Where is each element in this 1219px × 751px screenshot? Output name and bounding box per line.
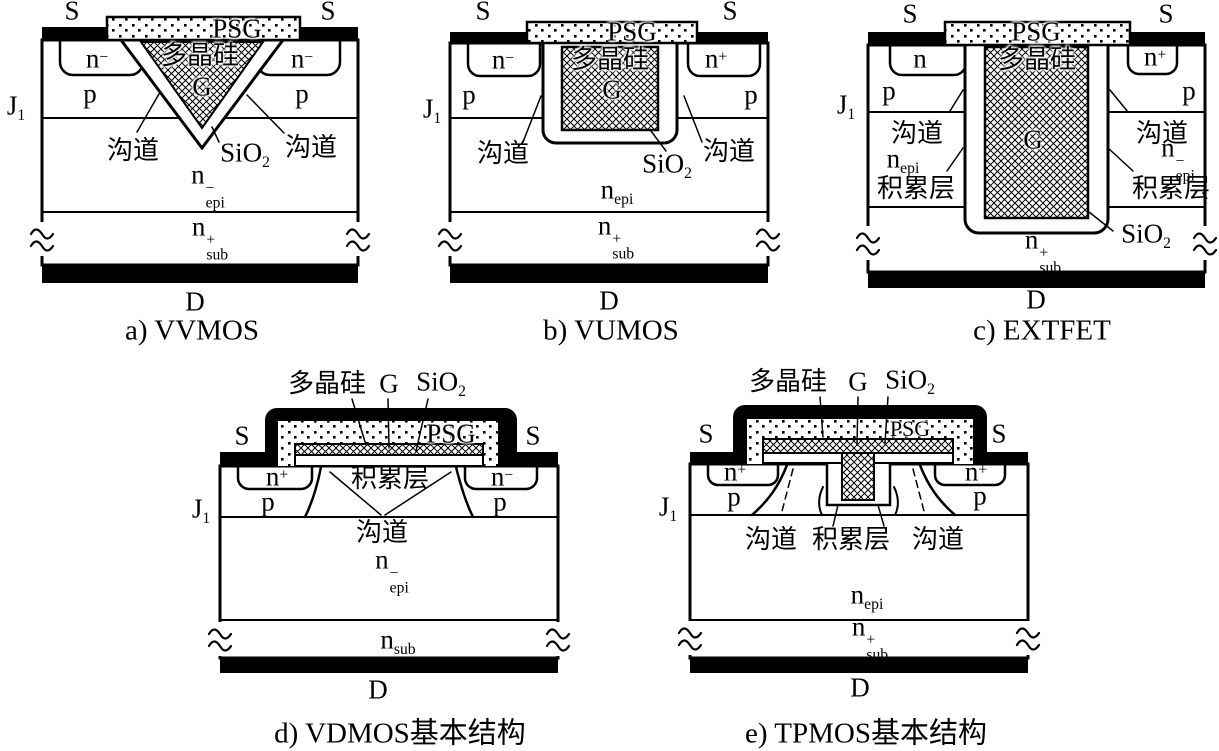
d-leader-gate <box>388 399 389 448</box>
d-p-right-label: p <box>493 489 507 516</box>
e-substrate-label: n+sub <box>852 614 888 665</box>
a-source-left-label: S <box>64 0 79 25</box>
a-drain-label: D <box>185 289 205 316</box>
b-poly-label: 多晶硅 <box>571 47 649 73</box>
c-accum-left-label: 积累层 <box>877 176 955 202</box>
a-n-left-label: n− <box>86 46 108 73</box>
a-n-right-label: n− <box>291 46 313 73</box>
c-gate-label: G <box>1023 127 1043 154</box>
b-junction-label: J1 <box>423 95 441 126</box>
a-caption: a) VVMOS <box>125 317 259 346</box>
b-drain-metal <box>450 265 768 283</box>
a-source-right-label: S <box>320 0 335 25</box>
diagram-canvas <box>0 0 1219 751</box>
e-epi-label: nepi <box>851 581 884 612</box>
e-junction-label: J1 <box>659 493 677 524</box>
d-junction-label: J1 <box>192 495 210 526</box>
b-channel-left-label: 沟道 <box>477 141 529 167</box>
b-psg-label: PSG <box>607 19 657 46</box>
b-p-left-label: p <box>462 82 476 109</box>
d-epi-label: n−epi <box>375 547 409 598</box>
b-n-right-label: n+ <box>705 46 727 73</box>
d-sio2-label: SiO2 <box>416 368 466 399</box>
e-gate-label: G <box>848 369 868 396</box>
c-drain-label: D <box>1026 287 1046 314</box>
c-poly-label: 多晶硅 <box>998 47 1076 73</box>
a-psg-region <box>107 17 300 40</box>
b-p-right-label: p <box>744 82 758 109</box>
a-epi-label: n−epi <box>191 162 225 213</box>
b-n-left-label: n− <box>492 47 514 74</box>
a-sio2-label: SiO2 <box>220 139 270 170</box>
d-caption: d) VDMOS基本结构 <box>274 720 526 749</box>
a-substrate-label: n+sub <box>192 214 228 265</box>
e-sio2-label: SiO2 <box>885 366 935 397</box>
e-accum-label: 积累层 <box>812 527 890 553</box>
e-leader-gate <box>857 397 858 445</box>
a-drain-metal <box>42 265 358 283</box>
e-source-right-label: S <box>991 421 1006 448</box>
d-poly-label: 多晶硅 <box>288 371 366 397</box>
e-caption: e) TPMOS基本结构 <box>745 720 987 749</box>
c-substrate-label: n+sub <box>1025 227 1061 278</box>
d-source-right-label: S <box>525 423 540 450</box>
c-psg-label: PSG <box>1011 19 1061 46</box>
b-channel-right-label: 沟道 <box>703 139 755 165</box>
e-poly-label: 多晶硅 <box>749 369 827 395</box>
d-drain-label: D <box>368 677 388 704</box>
c-caption: c) EXTFET <box>973 317 1111 346</box>
a-p-left-label: p <box>83 81 97 108</box>
d-substrate-label: nsub <box>380 626 415 657</box>
c-epi-left-label: nepi <box>887 145 920 176</box>
b-caption: b) VUMOS <box>543 317 679 346</box>
b-sio2-label: SiO2 <box>642 150 692 181</box>
c-accum-right-label: 积累层 <box>1132 176 1210 202</box>
c-sio2-label: SiO2 <box>1121 220 1171 251</box>
c-p-left-label: p <box>882 78 896 105</box>
e-gate-poly-bar <box>763 439 953 453</box>
c-junction-label: J1 <box>837 91 855 122</box>
c-n-right-label: n+ <box>1144 44 1166 71</box>
b-epi-label: nepi <box>601 176 634 207</box>
a-gate-label: G <box>192 74 212 101</box>
c-p-right-label: p <box>1182 78 1196 105</box>
d-gate-label: G <box>379 371 399 398</box>
e-gate-poly-stem <box>842 453 874 500</box>
b-substrate-label: n+sub <box>598 213 634 264</box>
e-channel-right-label: 沟道 <box>912 527 964 553</box>
d-channel-label: 沟道 <box>356 520 408 546</box>
c-n-left-label: n <box>913 46 927 73</box>
e-p-right-label: p <box>973 483 987 510</box>
d-source-left-label: S <box>234 423 249 450</box>
a-junction-label: J1 <box>7 92 25 123</box>
b-gate-label: G <box>602 77 622 104</box>
c-source-right-label: S <box>1158 1 1173 28</box>
d-psg-label: PSG <box>426 421 476 448</box>
a-channel-right-label: 沟道 <box>285 135 337 161</box>
e-drain-label: D <box>850 675 870 702</box>
d-p-left-label: p <box>261 489 275 516</box>
a-p-right-label: p <box>295 81 309 108</box>
e-psg-label: PSG <box>890 418 930 440</box>
e-channel-left-label: 沟道 <box>745 527 797 553</box>
b-source-right-label: S <box>722 0 737 25</box>
b-source-left-label: S <box>475 0 490 25</box>
a-channel-left-label: 沟道 <box>107 138 159 164</box>
d-accum-label: 积累层 <box>351 466 429 492</box>
a-psg-label: PSG <box>212 16 262 43</box>
d-drain-metal <box>220 658 558 673</box>
c-source-left-label: S <box>902 1 917 28</box>
e-source-left-label: S <box>698 421 713 448</box>
e-p-left-label: p <box>727 484 741 511</box>
a-poly-label: 多晶硅 <box>161 43 239 69</box>
mosfet-structures-figure: S S PSG 多晶硅 G n− n− p p J1 沟道 SiO2 沟道 n−… <box>0 0 1219 751</box>
b-drain-label: D <box>599 288 619 315</box>
